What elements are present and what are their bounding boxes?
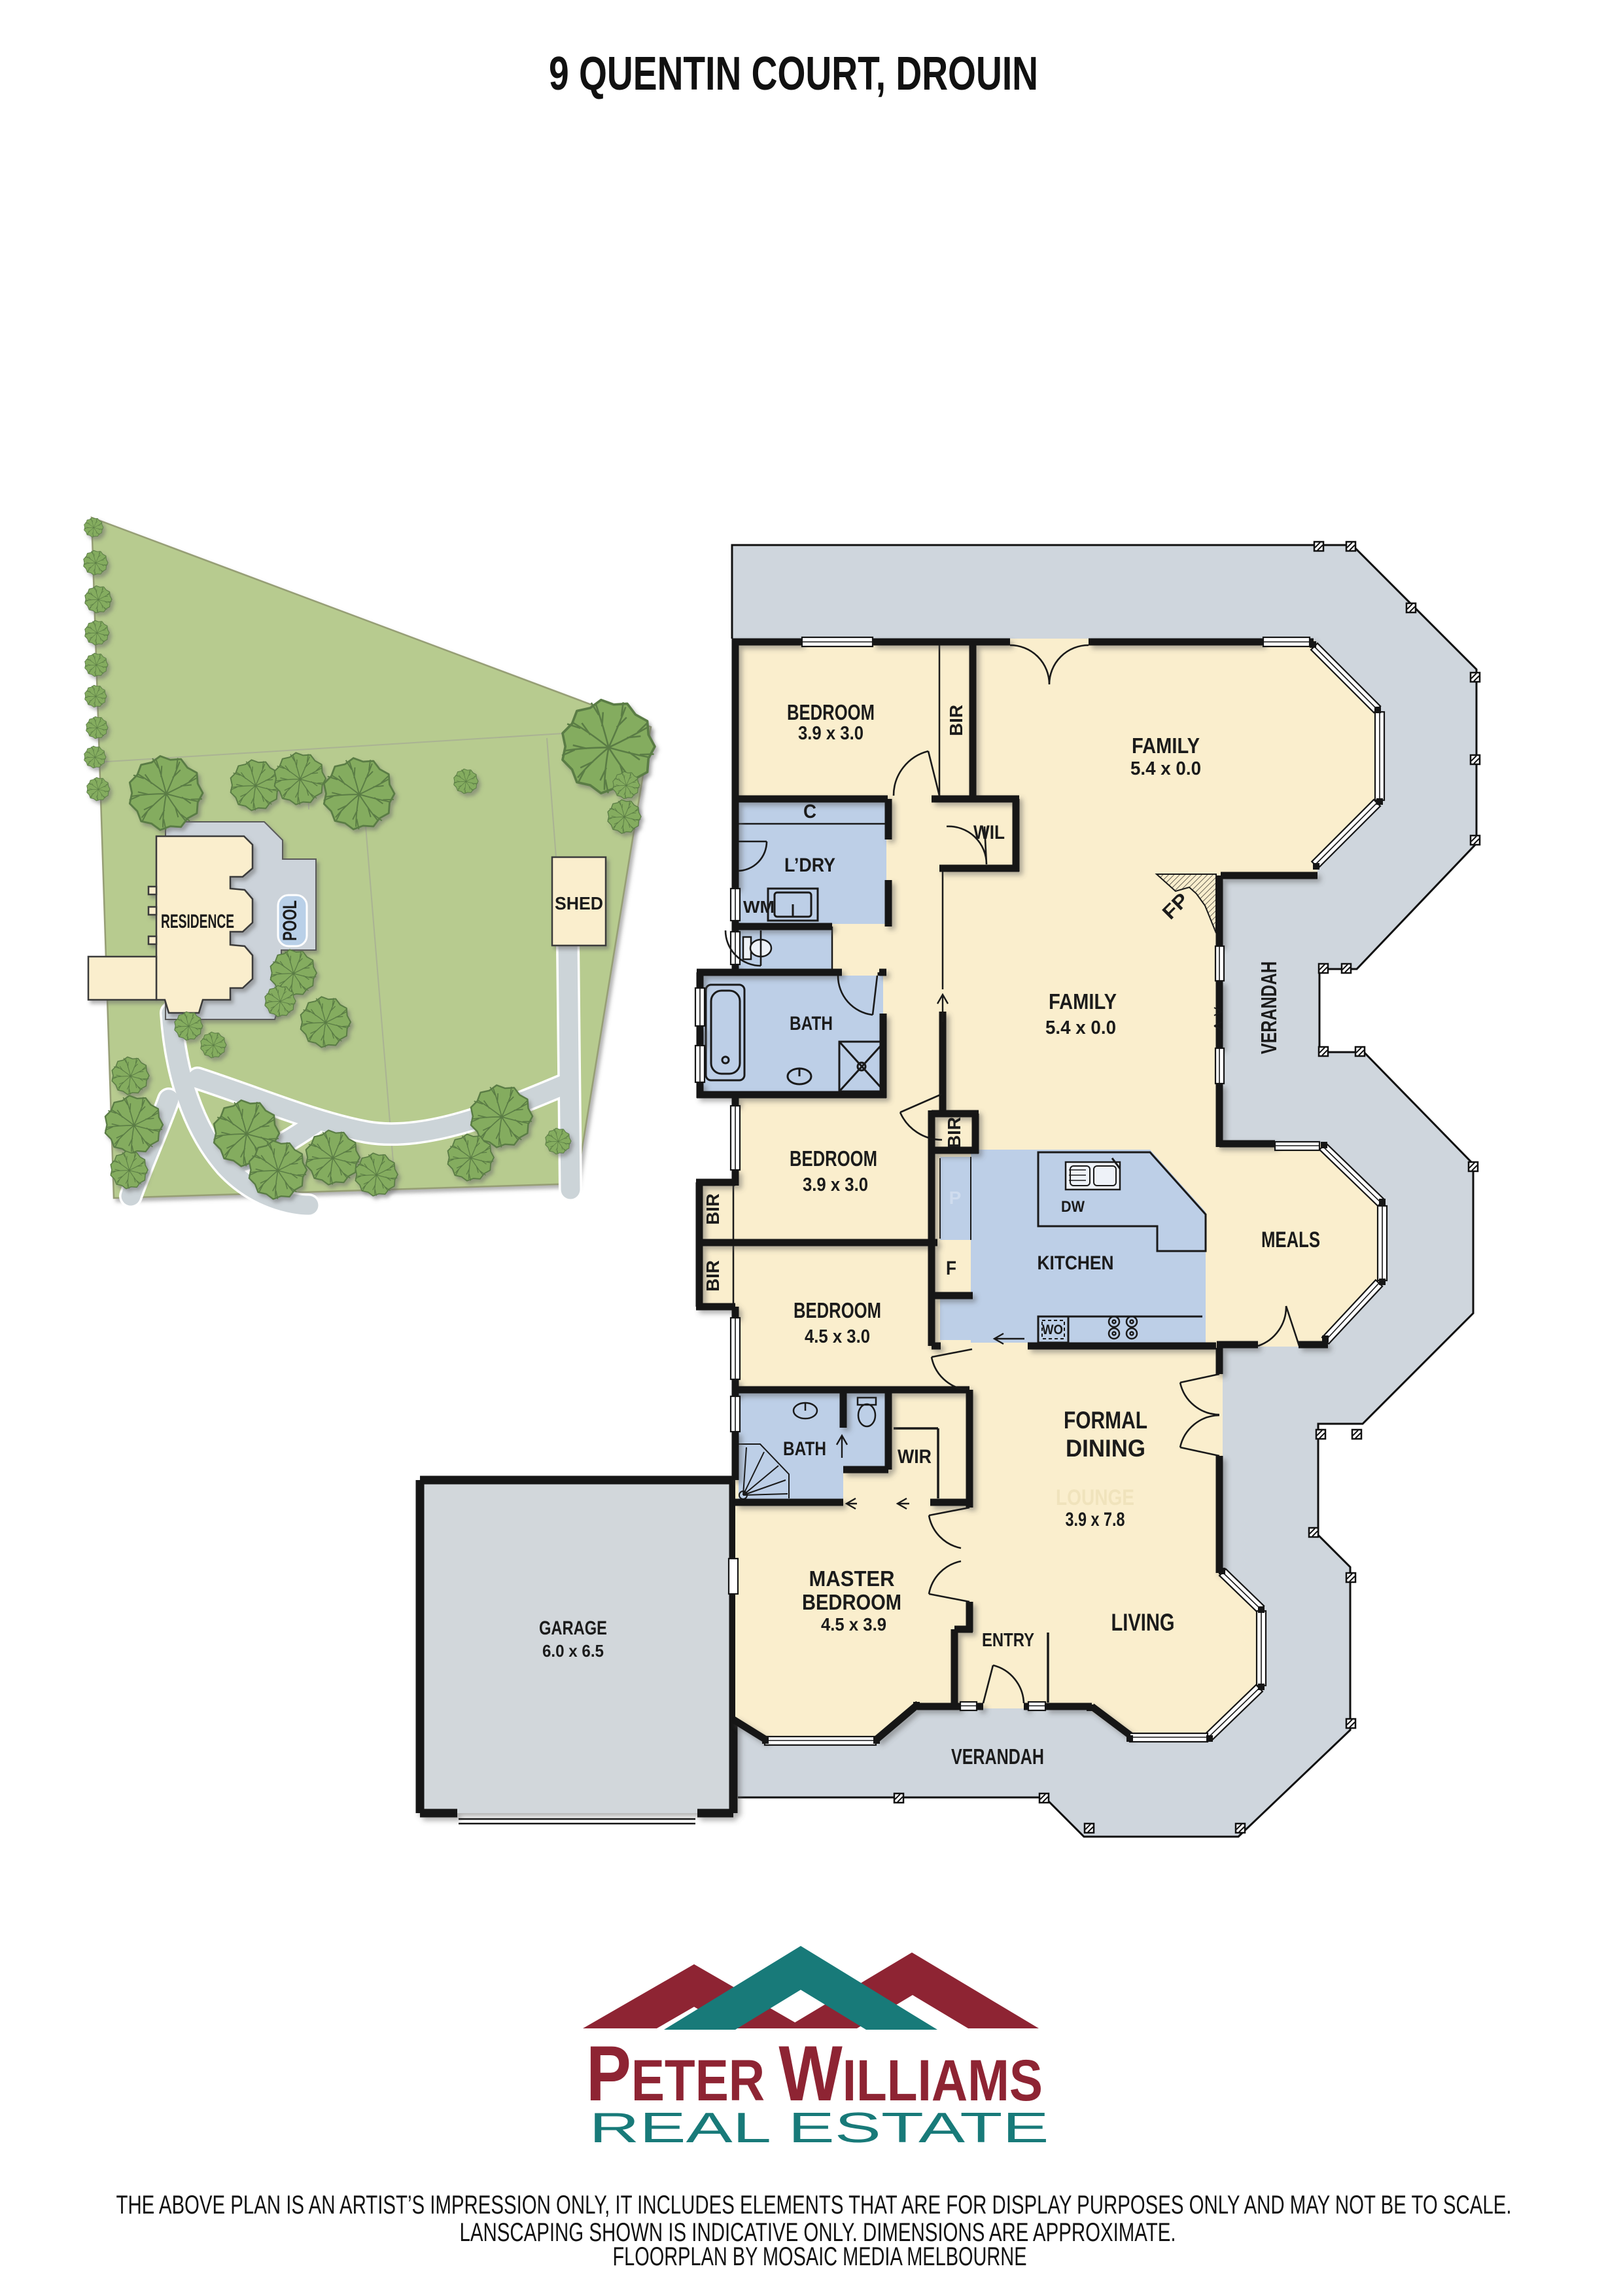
svg-text:BATH: BATH	[790, 1013, 833, 1034]
svg-text:VERANDAH: VERANDAH	[951, 1744, 1044, 1769]
svg-text:FAMILY: FAMILY	[1132, 733, 1200, 758]
svg-text:WO: WO	[1042, 1322, 1063, 1337]
svg-text:BIR: BIR	[946, 705, 966, 736]
svg-text:KITCHEN: KITCHEN	[1038, 1252, 1114, 1274]
svg-text:3.9 x 7.8: 3.9 x 7.8	[1066, 1509, 1125, 1530]
svg-text:BIR: BIR	[703, 1193, 723, 1225]
svg-text:MASTER: MASTER	[809, 1566, 895, 1591]
svg-text:F: F	[946, 1258, 956, 1279]
svg-text:DINING: DINING	[1066, 1435, 1145, 1462]
svg-text:REAL ESTATE: REAL ESTATE	[589, 2104, 1049, 2151]
svg-text:WIL: WIL	[973, 822, 1005, 843]
svg-text:FLOORPLAN BY MOSAIC MEDIA MELB: FLOORPLAN BY MOSAIC MEDIA MELBOURNE	[613, 2242, 1027, 2271]
svg-text:6.0 x 6.5: 6.0 x 6.5	[542, 1641, 604, 1661]
svg-text:POOL: POOL	[279, 900, 301, 941]
svg-text:9 QUENTIN COURT, DROUIN: 9 QUENTIN COURT, DROUIN	[549, 48, 1038, 100]
svg-text:P: P	[949, 1188, 962, 1208]
svg-text:ENTRY: ENTRY	[982, 1630, 1034, 1651]
svg-text:VERANDAH: VERANDAH	[1257, 961, 1281, 1054]
svg-text:4.5 x 3.9: 4.5 x 3.9	[821, 1614, 886, 1634]
svg-text:FAMILY: FAMILY	[1049, 989, 1117, 1014]
svg-text:RESIDENCE: RESIDENCE	[161, 911, 234, 932]
svg-text:BATH: BATH	[783, 1438, 826, 1460]
svg-text:BEDROOM: BEDROOM	[794, 1298, 881, 1322]
svg-text:BEDROOM: BEDROOM	[802, 1590, 901, 1614]
svg-text:BEDROOM: BEDROOM	[787, 700, 875, 724]
svg-text:LIVING: LIVING	[1111, 1609, 1175, 1636]
svg-text:WM: WM	[743, 897, 775, 917]
svg-text:BIR: BIR	[944, 1117, 964, 1148]
svg-text:BEDROOM: BEDROOM	[790, 1146, 877, 1171]
svg-text:5.4 x 0.0: 5.4 x 0.0	[1130, 758, 1201, 779]
svg-text:THE ABOVE PLAN IS AN ARTIST’S: THE ABOVE PLAN IS AN ARTIST’S IMPRESSION…	[116, 2191, 1512, 2219]
svg-text:4.5 x 3.0: 4.5 x 3.0	[805, 1326, 870, 1347]
svg-text:3.9 x 3.0: 3.9 x 3.0	[803, 1174, 868, 1195]
svg-text:DW: DW	[1061, 1198, 1085, 1216]
svg-text:SHED: SHED	[555, 893, 603, 913]
svg-text:5.4 x 0.0: 5.4 x 0.0	[1045, 1017, 1116, 1038]
svg-text:LOUNGE: LOUNGE	[1056, 1485, 1134, 1510]
svg-text:FORMAL: FORMAL	[1064, 1407, 1147, 1434]
svg-text:WIR: WIR	[898, 1446, 932, 1468]
svg-text:GARAGE: GARAGE	[539, 1617, 607, 1639]
svg-text:BIR: BIR	[703, 1260, 723, 1292]
svg-text:MEALS: MEALS	[1261, 1227, 1320, 1252]
svg-text:3.9 x 3.0: 3.9 x 3.0	[798, 723, 864, 744]
svg-text:C: C	[803, 801, 816, 822]
svg-text:L’DRY: L’DRY	[784, 855, 835, 876]
